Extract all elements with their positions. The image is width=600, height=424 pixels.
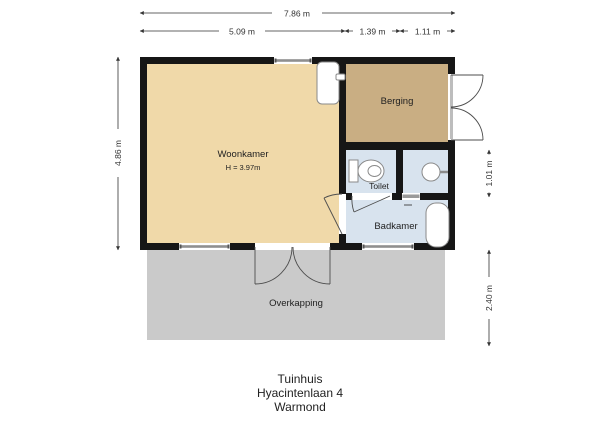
title-city: Warmond <box>0 400 600 414</box>
svg-text:4.86 m: 4.86 m <box>113 140 123 166</box>
window-badkamer-bottom <box>362 243 414 250</box>
door-swing-arc <box>451 108 483 140</box>
svg-text:5.09 m: 5.09 m <box>229 27 255 37</box>
wall-berging-bottom <box>339 142 455 150</box>
svg-text:2.40 m: 2.40 m <box>484 285 494 311</box>
overkapping-floor <box>147 250 445 340</box>
floor-plan: Woonkamer H = 3.97m Berging Toilet Badka… <box>0 0 600 424</box>
window-end-cap <box>412 245 414 249</box>
wall-toilet-divider <box>396 150 403 193</box>
svg-text:1.11 m: 1.11 m <box>415 27 440 37</box>
overkapping-label: Overkapping <box>269 298 323 309</box>
title-address: Hyacintenlaan 4 <box>0 386 600 400</box>
overkapping-area <box>147 250 445 340</box>
woonkamer-height-note: H = 3.97m <box>226 163 261 172</box>
title-building: Tuinhuis <box>0 372 600 386</box>
double-door-berging <box>448 74 483 140</box>
svg-text:1.39 m: 1.39 m <box>360 27 386 37</box>
dim-shower-room-width: 1.11 m <box>400 24 455 37</box>
svg-text:1.01 m: 1.01 m <box>484 161 494 187</box>
door-swing-arc <box>451 75 483 107</box>
dim-overkapping-depth: 2.40 m <box>483 250 496 346</box>
dim-toilet-height: 1.01 m <box>483 150 496 197</box>
title-block: Tuinhuis Hyacintenlaan 4 Warmond <box>0 372 600 414</box>
toilet-label: Toilet <box>369 181 389 191</box>
dim-total-width: 7.86 m <box>140 6 455 19</box>
window-end-cap <box>310 59 312 63</box>
floor-plan-svg: Woonkamer H = 3.97m Berging Toilet Badka… <box>0 0 600 424</box>
bathtub-icon <box>426 203 449 247</box>
toilet-icon <box>349 160 384 182</box>
badkamer-label: Badkamer <box>374 221 417 232</box>
wall-left <box>140 57 147 250</box>
window-end-cap <box>363 245 365 249</box>
window-end-cap <box>275 59 277 63</box>
window-end-cap <box>228 245 230 249</box>
berging-label: Berging <box>381 96 414 107</box>
dim-toilet-width: 1.39 m <box>345 24 400 37</box>
dim-total-height: 4.86 m <box>112 57 125 250</box>
dim-woonkamer-width: 5.09 m <box>140 24 345 37</box>
window-woonkamer-bottom <box>179 243 230 250</box>
woonkamer-label: Woonkamer <box>217 149 268 160</box>
svg-text:7.86 m: 7.86 m <box>284 9 310 19</box>
window-top <box>274 57 312 64</box>
window-end-cap <box>180 245 182 249</box>
door-threshold <box>403 195 420 199</box>
